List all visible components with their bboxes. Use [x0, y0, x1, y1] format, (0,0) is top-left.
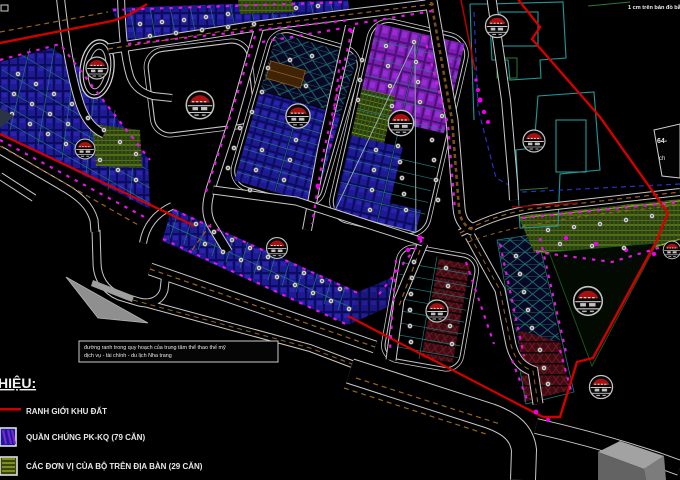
svg-text:CÁC ĐƠN VỊ CỦA BỘ TRÊN ĐỊA BÀN: CÁC ĐƠN VỊ CỦA BỘ TRÊN ĐỊA BÀN (29 CĂN)	[26, 462, 203, 471]
svg-text:RANH GIỚI KHU ĐẤT: RANH GIỚI KHU ĐẤT	[26, 406, 107, 416]
svg-text:dịch vụ - tài chính - du lịch: dịch vụ - tài chính - du lịch Nha trang	[84, 353, 172, 359]
svg-text:1 cm trên bản đồ bằng 5: 1 cm trên bản đồ bằng 5	[628, 4, 680, 11]
svg-text:ch: ch	[659, 156, 665, 162]
svg-text:QUẦN CHÚNG PK-KQ (79 CĂN): QUẦN CHÚNG PK-KQ (79 CĂN)	[26, 432, 145, 442]
svg-text:HIỆU:: HIỆU:	[0, 374, 36, 391]
svg-text:64-: 64-	[657, 138, 668, 145]
svg-text:đường ranh trong quy hoạch của: đường ranh trong quy hoạch của trung tâm…	[84, 344, 226, 351]
